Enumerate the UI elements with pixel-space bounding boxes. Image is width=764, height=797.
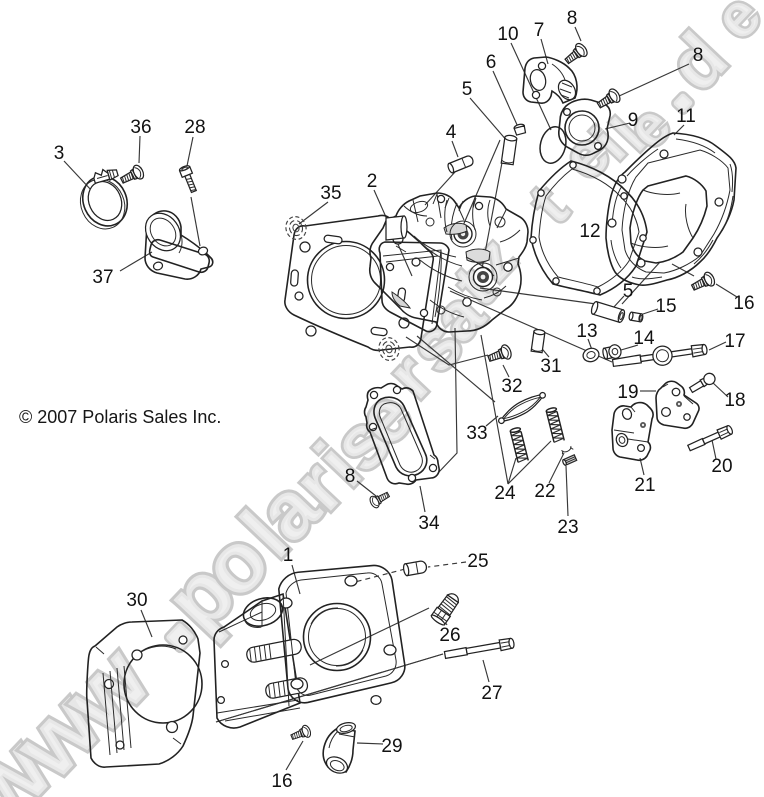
svg-text:© 2007 Polaris Sales Inc.: © 2007 Polaris Sales Inc. — [19, 407, 221, 427]
svg-text:26: 26 — [439, 625, 460, 646]
svg-text:30: 30 — [126, 590, 147, 611]
svg-text:27: 27 — [481, 683, 502, 704]
svg-text:37: 37 — [92, 267, 113, 288]
svg-text:35: 35 — [320, 183, 341, 204]
svg-text:20: 20 — [711, 456, 732, 477]
svg-text:11: 11 — [676, 106, 696, 127]
svg-text:8: 8 — [345, 466, 356, 487]
svg-text:7: 7 — [534, 20, 545, 41]
svg-text:18: 18 — [724, 390, 745, 411]
svg-text:23: 23 — [557, 517, 578, 538]
svg-text:24: 24 — [494, 483, 516, 504]
svg-text:6: 6 — [486, 52, 497, 73]
svg-text:8: 8 — [693, 45, 704, 66]
svg-text:1: 1 — [283, 545, 294, 566]
svg-text:13: 13 — [576, 321, 597, 342]
svg-text:2: 2 — [367, 171, 378, 192]
svg-text:32: 32 — [501, 376, 522, 397]
svg-text:36: 36 — [130, 117, 151, 138]
svg-text:15: 15 — [655, 296, 676, 317]
svg-text:14: 14 — [633, 328, 655, 349]
svg-text:34: 34 — [418, 513, 440, 534]
svg-text:22: 22 — [534, 481, 555, 502]
svg-text:12: 12 — [579, 221, 600, 242]
svg-text:33: 33 — [466, 423, 487, 444]
svg-text:19: 19 — [617, 382, 638, 403]
svg-text:10: 10 — [497, 24, 518, 45]
svg-text:5: 5 — [623, 281, 634, 302]
svg-text:5: 5 — [462, 79, 473, 100]
svg-text:3: 3 — [54, 143, 65, 164]
svg-text:8: 8 — [567, 8, 578, 29]
svg-text:21: 21 — [634, 475, 655, 496]
svg-text:29: 29 — [381, 736, 402, 757]
svg-text:4: 4 — [446, 122, 457, 143]
svg-text:16: 16 — [733, 293, 754, 314]
svg-text:28: 28 — [184, 117, 205, 138]
svg-text:16: 16 — [271, 771, 292, 792]
svg-text:17: 17 — [724, 331, 745, 352]
svg-text:9: 9 — [628, 110, 639, 131]
svg-text:31: 31 — [540, 356, 561, 377]
svg-text:25: 25 — [467, 551, 488, 572]
